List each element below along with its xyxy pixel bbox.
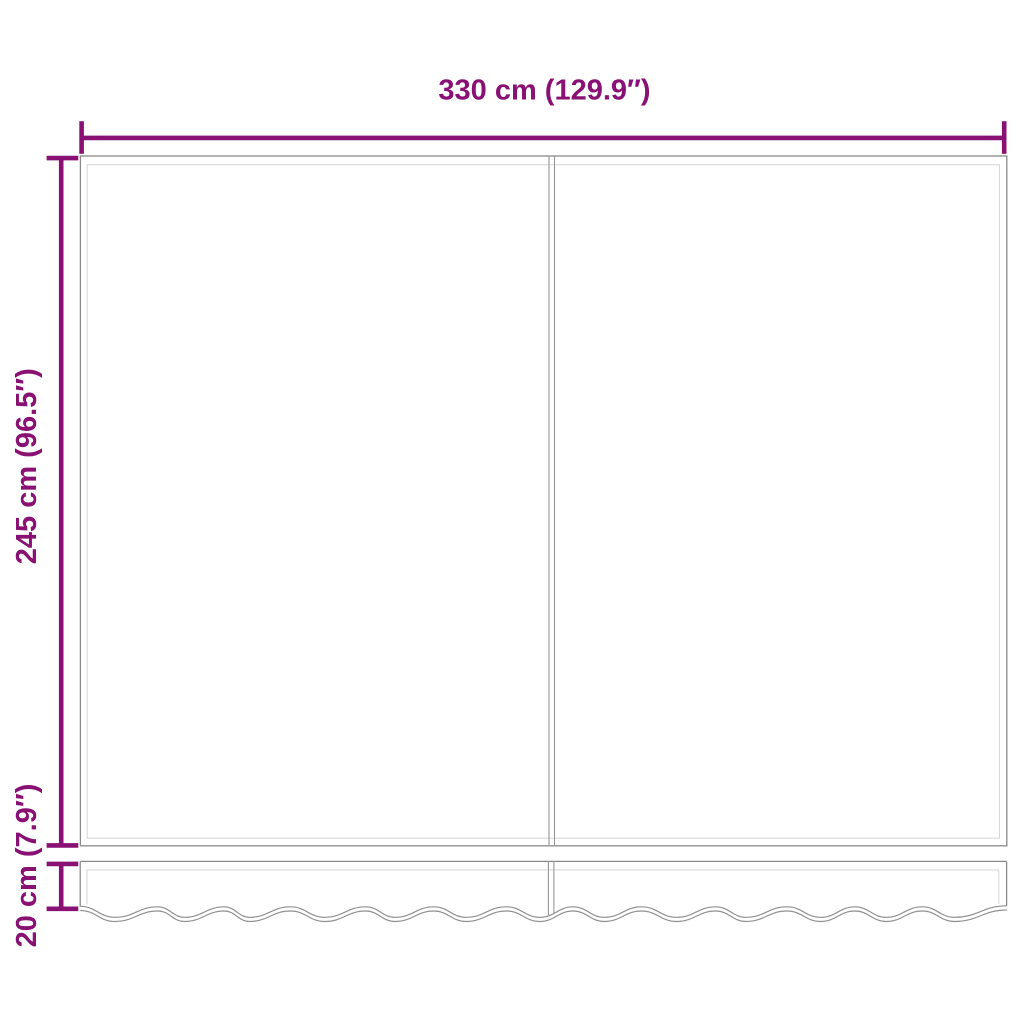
svg-text:330 cm (129.9″): 330 cm (129.9″) bbox=[438, 75, 650, 107]
svg-text:245 cm (96.5″): 245 cm (96.5″) bbox=[11, 368, 43, 564]
svg-text:20 cm (7.9″): 20 cm (7.9″) bbox=[11, 784, 43, 948]
